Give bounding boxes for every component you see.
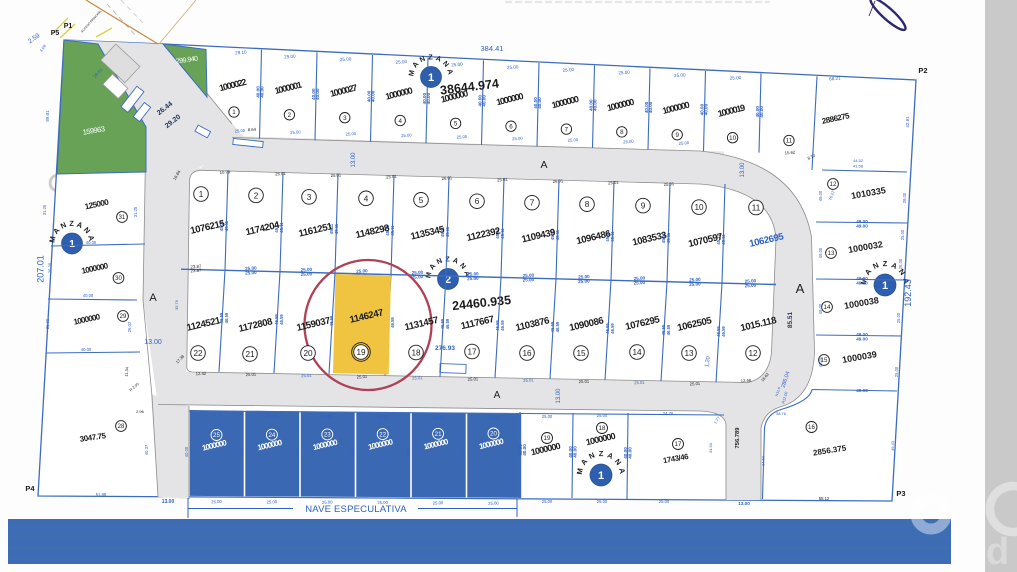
svg-text:89.01: 89.01 (45, 110, 50, 122)
svg-text:40.00: 40.00 (86, 240, 97, 245)
svg-text:25.00: 25.00 (562, 67, 574, 73)
svg-text:207.01: 207.01 (36, 255, 46, 283)
svg-text:40.00: 40.00 (315, 88, 320, 100)
svg-text:10: 10 (729, 135, 736, 142)
svg-text:25.00: 25.00 (597, 413, 608, 418)
svg-text:25.00: 25.00 (542, 499, 553, 504)
svg-text:25.01: 25.01 (301, 373, 312, 379)
svg-text:7: 7 (530, 199, 535, 208)
svg-text:13.00: 13.00 (738, 501, 750, 506)
svg-text:49.00: 49.00 (856, 224, 868, 229)
svg-text:25.00: 25.00 (48, 262, 53, 273)
svg-text:12.68: 12.68 (741, 378, 752, 384)
svg-text:9: 9 (641, 202, 646, 211)
svg-text:40.00: 40.00 (311, 88, 316, 100)
svg-text:25.00: 25.00 (267, 413, 278, 418)
svg-text:25.00: 25.00 (689, 281, 701, 287)
svg-text:P4: P4 (25, 484, 35, 493)
svg-text:40.00: 40.00 (240, 446, 245, 457)
svg-text:5: 5 (419, 196, 424, 205)
svg-text:34.50: 34.50 (761, 455, 766, 466)
svg-text:28: 28 (118, 424, 125, 430)
svg-text:46.59: 46.59 (440, 318, 445, 329)
svg-text:40.00: 40.00 (426, 92, 431, 104)
svg-text:2.96: 2.96 (136, 409, 145, 414)
svg-text:40.00: 40.00 (704, 103, 709, 115)
svg-text:25.00: 25.00 (45, 318, 50, 329)
svg-text:9: 9 (675, 132, 679, 139)
svg-text:25.01: 25.01 (468, 376, 479, 382)
svg-text:5: 5 (454, 121, 458, 128)
svg-text:46.59: 46.59 (224, 312, 229, 323)
svg-text:25.00: 25.00 (623, 139, 634, 145)
svg-text:26.01: 26.01 (441, 175, 452, 181)
svg-text:25.00: 25.00 (900, 229, 905, 240)
svg-text:25.00: 25.00 (542, 414, 553, 419)
svg-text:46.59: 46.59 (721, 326, 726, 337)
svg-text:40.00: 40.00 (573, 446, 578, 458)
svg-text:384.41: 384.41 (481, 44, 504, 53)
svg-text:46.59: 46.59 (274, 314, 279, 325)
svg-text:13: 13 (828, 250, 835, 257)
svg-text:30: 30 (115, 276, 122, 282)
svg-text:25.01: 25.01 (663, 181, 674, 187)
svg-text:31: 31 (119, 215, 126, 221)
svg-text:46.59: 46.59 (555, 321, 560, 332)
svg-text:40.00: 40.00 (537, 97, 542, 109)
svg-text:15.62: 15.62 (784, 150, 795, 156)
svg-text:25.00: 25.00 (245, 270, 257, 276)
svg-text:2: 2 (254, 191, 259, 200)
svg-text:35.76: 35.76 (174, 299, 179, 310)
svg-text:1: 1 (69, 238, 75, 250)
svg-text:8: 8 (585, 200, 590, 209)
svg-text:31.25: 31.25 (42, 204, 47, 215)
svg-text:25.01: 25.01 (579, 379, 590, 385)
svg-text:25.00: 25.00 (467, 276, 479, 282)
svg-text:51.88: 51.88 (96, 492, 107, 497)
svg-text:21: 21 (245, 350, 255, 359)
svg-text:40.00: 40.00 (295, 446, 300, 457)
svg-text:4: 4 (398, 118, 402, 125)
svg-text:25.00: 25.00 (898, 258, 903, 269)
svg-text:25.00: 25.00 (377, 414, 388, 419)
svg-text:46.59: 46.59 (550, 321, 555, 332)
svg-text:21: 21 (435, 431, 442, 438)
svg-text:A: A (796, 281, 805, 296)
svg-text:24.76: 24.76 (663, 411, 674, 416)
svg-text:40.00: 40.00 (260, 86, 265, 98)
svg-text:40.00: 40.00 (184, 446, 189, 457)
svg-text:20: 20 (490, 431, 497, 438)
svg-text:40.00: 40.00 (588, 99, 593, 111)
svg-text:25.01: 25.01 (690, 381, 701, 387)
svg-text:58.12: 58.12 (819, 496, 830, 501)
svg-text:31.25: 31.25 (133, 206, 138, 217)
svg-text:1: 1 (232, 109, 236, 116)
svg-text:25.01: 25.01 (357, 374, 368, 380)
svg-text:40.00: 40.00 (81, 347, 92, 352)
svg-text:40.00: 40.00 (628, 447, 633, 459)
svg-text:12.42: 12.42 (196, 371, 207, 377)
svg-text:13: 13 (684, 349, 694, 358)
svg-text:A: A (494, 390, 501, 401)
svg-text:25.00: 25.00 (290, 129, 301, 135)
svg-text:40.00: 40.00 (422, 92, 427, 104)
svg-text:42.81: 42.81 (905, 116, 910, 128)
svg-text:25.01: 25.01 (386, 174, 397, 180)
svg-text:25.01: 25.01 (497, 177, 508, 183)
svg-text:192.43: 192.43 (903, 279, 913, 307)
svg-text:29: 29 (120, 314, 127, 320)
svg-text:40.00: 40.00 (366, 90, 371, 102)
svg-text:40.00: 40.00 (351, 446, 356, 457)
svg-text:40.00: 40.00 (648, 101, 653, 113)
svg-text:45.11: 45.11 (445, 226, 450, 237)
svg-text:28.00: 28.00 (902, 192, 907, 203)
svg-text:276.93: 276.93 (435, 345, 455, 352)
svg-text:25.00: 25.00 (401, 132, 412, 138)
svg-text:40.00: 40.00 (482, 95, 487, 107)
svg-text:25.00: 25.00 (395, 59, 407, 65)
svg-text:49.00: 49.00 (818, 247, 823, 258)
svg-text:18: 18 (411, 349, 421, 358)
svg-text:25.00: 25.00 (896, 312, 901, 323)
svg-text:49.00: 49.00 (856, 281, 868, 286)
svg-text:3: 3 (307, 193, 312, 202)
svg-text:22: 22 (193, 349, 203, 358)
svg-text:25.00: 25.00 (301, 271, 313, 277)
svg-text:25.01: 25.01 (330, 172, 341, 178)
svg-text:26.01: 26.01 (552, 178, 563, 184)
svg-text:25.00: 25.00 (730, 75, 742, 81)
svg-text:8.64: 8.64 (248, 127, 257, 133)
svg-text:18: 18 (599, 425, 606, 432)
svg-text:40.00: 40.00 (533, 97, 538, 109)
svg-text:17: 17 (675, 441, 682, 448)
svg-text:40.00: 40.00 (462, 446, 467, 457)
svg-text:P5: P5 (51, 30, 60, 37)
svg-text:45.11: 45.11 (334, 223, 339, 234)
svg-text:46.59: 46.59 (445, 318, 450, 329)
svg-text:P2: P2 (918, 66, 927, 75)
svg-text:46.59: 46.59 (610, 323, 615, 334)
svg-text:25.01: 25.01 (634, 380, 645, 386)
svg-text:1: 1 (882, 280, 888, 292)
svg-text:11: 11 (786, 138, 793, 145)
svg-text:40.00: 40.00 (699, 103, 704, 115)
svg-text:25.00: 25.00 (597, 499, 608, 504)
svg-text:40.00: 40.00 (755, 106, 760, 118)
svg-text:40.00: 40.00 (255, 86, 260, 98)
svg-text:25.01: 25.01 (246, 372, 257, 378)
svg-text:8: 8 (620, 129, 624, 136)
svg-text:25.00: 25.00 (322, 413, 333, 418)
svg-text:25.00: 25.00 (507, 64, 519, 70)
svg-text:25.01: 25.01 (412, 375, 423, 381)
svg-text:26.01: 26.01 (275, 171, 286, 177)
svg-text:49.98: 49.98 (856, 388, 868, 393)
svg-text:40.00: 40.00 (593, 99, 598, 111)
svg-text:40.00: 40.00 (522, 444, 527, 456)
svg-text:17: 17 (467, 348, 477, 357)
svg-text:25.00: 25.00 (512, 135, 523, 141)
svg-text:25.00: 25.00 (659, 499, 670, 504)
svg-text:40.37: 40.37 (144, 444, 149, 455)
svg-text:34.50: 34.50 (708, 442, 713, 453)
svg-text:23: 23 (324, 432, 331, 439)
svg-text:46.59: 46.59 (495, 320, 500, 331)
svg-text:24: 24 (268, 432, 275, 439)
svg-text:49.00: 49.00 (856, 337, 868, 342)
svg-text:46.59: 46.59 (605, 323, 610, 334)
svg-text:13.00: 13.00 (144, 339, 162, 346)
svg-text:25.00: 25.00 (433, 415, 444, 420)
svg-text:46.59: 46.59 (666, 324, 671, 335)
svg-text:46.59: 46.59 (500, 320, 505, 331)
svg-text:40.00: 40.00 (406, 446, 411, 457)
svg-text:19: 19 (544, 435, 551, 442)
svg-text:49.00: 49.00 (818, 303, 823, 314)
svg-text:25: 25 (213, 432, 220, 439)
svg-text:40.00: 40.00 (477, 95, 482, 107)
svg-text:23.87: 23.87 (190, 268, 202, 274)
svg-text:25.00: 25.00 (523, 277, 535, 283)
svg-text:44.52: 44.52 (853, 158, 864, 163)
svg-text:10.79: 10.79 (219, 169, 230, 175)
svg-text:4: 4 (364, 194, 369, 203)
svg-text:25.00: 25.00 (211, 412, 222, 417)
svg-text:40.00: 40.00 (83, 293, 94, 298)
svg-text:13.00: 13.00 (740, 162, 746, 178)
svg-text:40.00: 40.00 (759, 106, 764, 118)
svg-text:40.00: 40.00 (371, 90, 376, 102)
svg-text:25.00: 25.00 (678, 140, 689, 146)
svg-text:45.11: 45.11 (279, 222, 284, 233)
svg-text:11.34: 11.34 (124, 366, 130, 377)
svg-text:2: 2 (288, 112, 292, 119)
svg-text:A: A (149, 292, 157, 304)
svg-text:22: 22 (379, 431, 386, 438)
svg-text:46.59: 46.59 (716, 326, 721, 337)
svg-text:25.00: 25.00 (433, 500, 444, 505)
svg-text:14: 14 (824, 304, 831, 311)
svg-text:25.01: 25.01 (608, 180, 619, 186)
svg-text:25.00: 25.00 (211, 499, 222, 504)
svg-text:85.51: 85.51 (787, 311, 794, 328)
svg-text:25.00: 25.00 (674, 72, 686, 78)
svg-text:P3: P3 (896, 489, 905, 498)
svg-text:3: 3 (343, 115, 347, 122)
svg-text:P1: P1 (64, 23, 73, 30)
svg-text:11: 11 (752, 204, 761, 213)
svg-text:14: 14 (632, 348, 642, 357)
svg-text:1: 1 (428, 72, 434, 84)
svg-text:13.00: 13.00 (556, 388, 562, 404)
svg-text:41.58: 41.58 (853, 164, 864, 169)
svg-text:A: A (540, 159, 547, 171)
svg-text:12: 12 (748, 349, 758, 358)
svg-text:25.01: 25.01 (523, 377, 534, 383)
svg-text:13.00: 13.00 (162, 499, 175, 505)
svg-text:10: 10 (694, 203, 704, 212)
svg-text:13.00: 13.00 (351, 152, 357, 168)
svg-text:25.00: 25.00 (578, 278, 590, 284)
svg-text:12: 12 (830, 181, 837, 188)
svg-text:25.00: 25.00 (267, 499, 278, 504)
svg-text:20: 20 (303, 349, 313, 358)
svg-text:6: 6 (475, 197, 480, 206)
svg-text:46.59: 46.59 (390, 317, 395, 328)
svg-text:68.21: 68.21 (829, 75, 841, 81)
svg-text:25.00: 25.00 (488, 500, 499, 505)
svg-text:d: d (986, 531, 1009, 572)
svg-text:49.00: 49.00 (818, 190, 823, 201)
svg-text:49.43: 49.43 (890, 440, 895, 451)
svg-text:16: 16 (808, 424, 815, 431)
svg-text:25.00: 25.00 (451, 62, 463, 68)
svg-text:756.789: 756.789 (735, 427, 741, 449)
svg-text:45.11: 45.11 (555, 229, 560, 240)
svg-text:46.59: 46.59 (279, 314, 284, 325)
svg-text:45.11: 45.11 (390, 225, 395, 236)
svg-text:25.00: 25.00 (567, 137, 578, 143)
svg-text:45.11: 45.11 (500, 228, 505, 239)
svg-text:38.76: 38.76 (776, 411, 787, 416)
svg-text:40.00: 40.00 (644, 101, 649, 113)
svg-text:19: 19 (356, 348, 366, 357)
svg-text:25.00: 25.00 (634, 280, 646, 286)
svg-text:25.00: 25.00 (618, 70, 630, 76)
svg-text:1: 1 (199, 190, 204, 199)
svg-text:25.00: 25.00 (345, 131, 356, 137)
svg-text:25.00: 25.00 (488, 415, 499, 420)
svg-text:6: 6 (509, 124, 513, 131)
svg-text:45.11: 45.11 (224, 220, 229, 231)
svg-text:25.00: 25.00 (745, 283, 757, 289)
svg-text:7: 7 (565, 126, 569, 133)
svg-text:29.10: 29.10 (235, 49, 247, 55)
svg-text:25.00: 25.00 (894, 366, 899, 377)
svg-text:46.59: 46.59 (661, 324, 666, 335)
svg-text:25.00: 25.00 (456, 134, 467, 140)
svg-text:16: 16 (522, 349, 532, 358)
svg-text:26.02: 26.02 (127, 321, 132, 332)
svg-text:1: 1 (598, 470, 604, 482)
svg-text:25.00: 25.00 (284, 54, 296, 60)
svg-text:15: 15 (576, 349, 586, 358)
svg-text:49.00: 49.00 (818, 356, 823, 367)
svg-text:25.00: 25.00 (234, 128, 245, 134)
svg-text:NAVE ESPECULATIVA: NAVE ESPECULATIVA (305, 504, 407, 515)
svg-text:25.00: 25.00 (340, 56, 352, 62)
